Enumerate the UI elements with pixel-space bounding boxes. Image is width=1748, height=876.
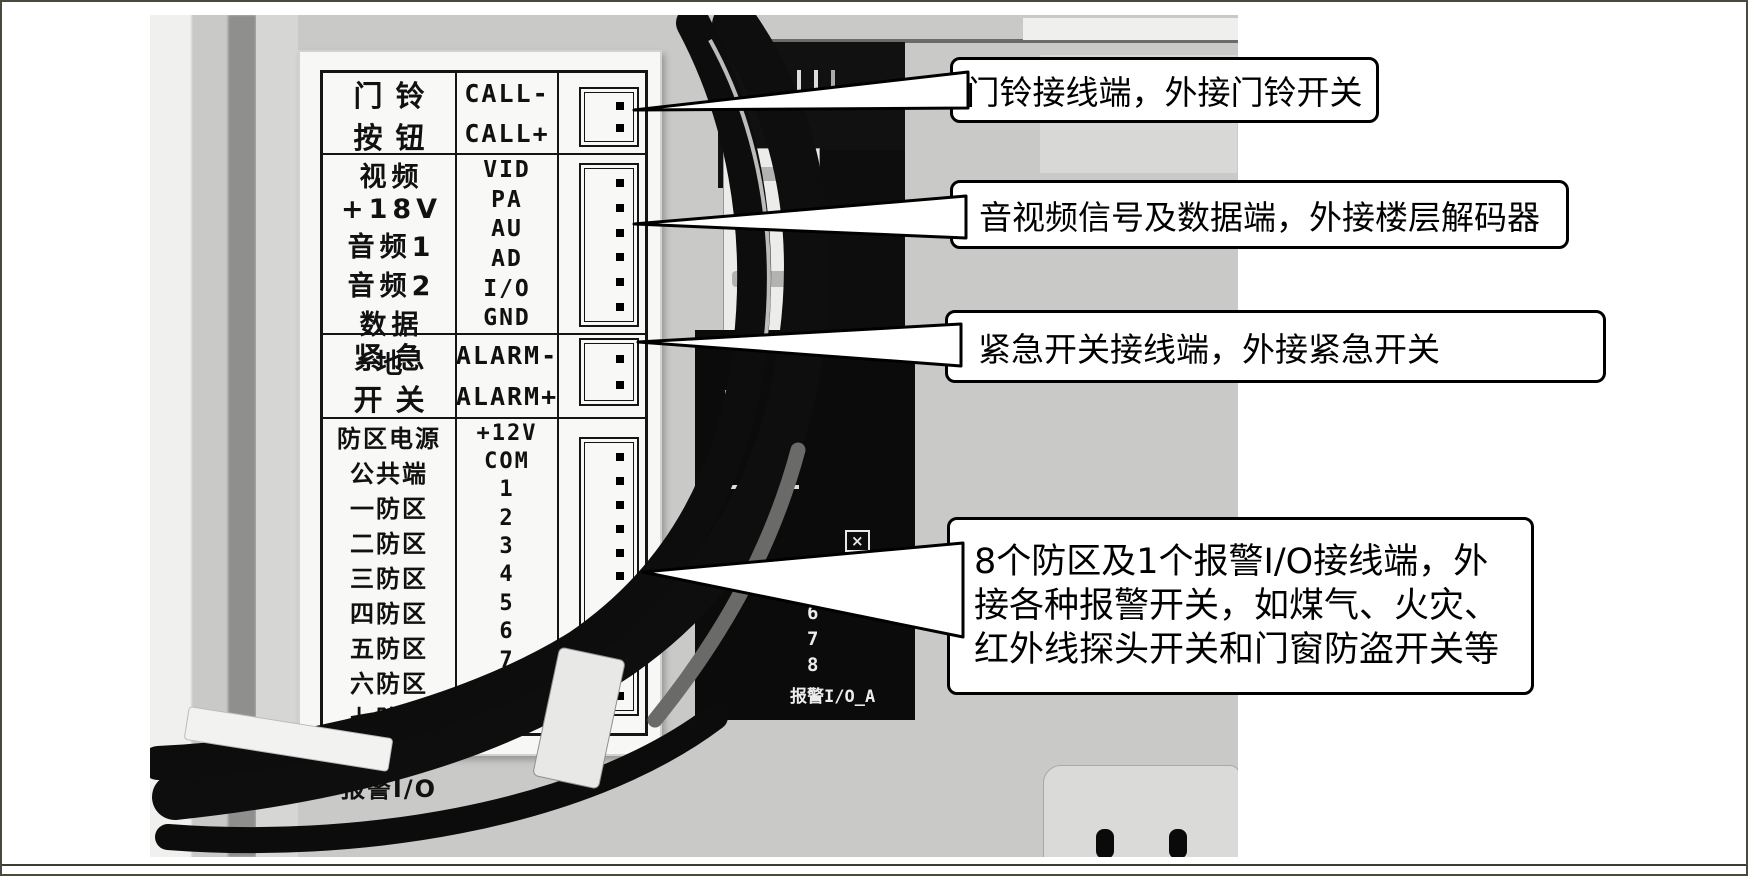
silkscreen-alarm-io: 报警I/O_A <box>790 682 875 707</box>
silkscreen-zone-8: 8 <box>807 654 818 676</box>
terminal-name: VID <box>457 155 557 185</box>
zh-label: 四防区 <box>323 594 455 629</box>
terminal-name: 6 <box>457 618 557 646</box>
connector-pin <box>616 525 624 533</box>
terminal-name: 7 <box>457 646 557 674</box>
terminal-name: CALL+ <box>457 113 557 153</box>
connector-pin <box>616 596 624 604</box>
connector-notch <box>732 167 794 181</box>
terminal-name: ALARM+ <box>457 376 557 417</box>
device-top-slab <box>1023 18 1238 40</box>
terminal-name-column: CALL-CALL+ <box>457 73 559 153</box>
terminal-name: ALARM- <box>457 335 557 376</box>
connector-slot <box>1169 829 1187 857</box>
terminal-group-emergency: 紧急开关ALARM-ALARM+ <box>323 335 645 419</box>
connector-pin <box>616 303 624 311</box>
terminal-name: GND <box>457 303 557 333</box>
zh-label: 报警I/O <box>323 769 455 804</box>
connector-drawing-doorbell <box>579 87 639 147</box>
zh-label: 音频2 <box>323 264 455 303</box>
connector-pin <box>616 549 624 557</box>
terminal-name-column: +12VCOM12345678I/O-A <box>457 419 559 731</box>
connector-inner-outline <box>584 343 634 401</box>
connector-inner-outline <box>584 168 634 322</box>
connector-pin <box>616 572 624 580</box>
silkscreen-zone-7: 7 <box>807 628 818 650</box>
zh-label: 三防区 <box>323 559 455 594</box>
terminal-name: 8 <box>457 674 557 702</box>
pcb-trace <box>780 70 784 96</box>
zh-label-column: 门铃按钮 <box>323 73 457 153</box>
silkscreen-partial-1: AL <box>787 358 809 379</box>
connector-pin <box>616 253 624 261</box>
terminal-name: +12V <box>457 419 557 447</box>
callout-emergency: 紧急开关接线端，外接紧急开关 <box>945 310 1606 383</box>
zh-label: 防区电源 <box>323 419 455 454</box>
pcb-dark-area <box>818 150 905 355</box>
connector-pin <box>616 204 624 212</box>
connector-pins <box>616 171 624 319</box>
connector-drawing-av-data <box>579 163 639 327</box>
callout-doorbell-text: 门铃接线端，外接门铃开关 <box>967 66 1363 114</box>
device-photo: 门铃按钮CALL-CALL+视频+18V音频1音频2数据地VIDPAAUADI/… <box>150 15 1238 857</box>
connector-column <box>559 155 645 333</box>
zh-label: 七防区 <box>323 699 455 734</box>
terminal-name: AD <box>457 244 557 274</box>
zh-label: 二防区 <box>323 524 455 559</box>
connector-pin <box>616 477 624 485</box>
zh-label: 紧急 <box>323 335 455 377</box>
zh-label-column: 紧急开关 <box>323 335 457 417</box>
zh-label: 按钮 <box>323 115 455 157</box>
connector-pin <box>616 278 624 286</box>
connector-pins <box>616 95 624 139</box>
terminal-name: 4 <box>457 561 557 589</box>
connector-column <box>559 73 645 153</box>
terminal-name: COM <box>457 447 557 475</box>
silkscreen-partial-2: AM <box>787 386 809 407</box>
callout-av-data-text: 音视频信号及数据端，外接楼层解码器 <box>979 191 1540 239</box>
bottom-rule <box>0 864 1748 866</box>
callout-zones: 8个防区及1个报警I/O接线端，外接各种报警开关，如煤气、火灾、红外线探头开关和… <box>947 517 1534 695</box>
zh-label: 开关 <box>323 377 455 419</box>
connector-pin <box>616 644 624 652</box>
zh-label: 六防区 <box>323 664 455 699</box>
callout-emergency-text: 紧急开关接线端，外接紧急开关 <box>978 323 1440 371</box>
pcb-board: AL AM × 6 7 8 报警I/O_A <box>695 330 915 720</box>
pcb-white-connector <box>723 148 820 342</box>
connector-pin <box>616 381 624 389</box>
terminal-name-column: VIDPAAUADI/OGND <box>457 155 559 333</box>
silkscreen-box-symbol: × <box>845 530 870 552</box>
zh-label: 五防区 <box>323 629 455 664</box>
connector-pin <box>616 124 624 132</box>
pcb-trace <box>814 70 818 96</box>
connector-pin <box>616 229 624 237</box>
terminal-group-av-data: 视频+18V音频1音频2数据地VIDPAAUADI/OGND <box>323 155 645 335</box>
connector-notch <box>732 271 794 287</box>
connector-pin <box>616 179 624 187</box>
connector-inner-outline <box>584 92 634 142</box>
pcb-trace <box>797 70 801 96</box>
zh-label: +18V <box>323 194 455 225</box>
pcb-trace <box>763 70 767 96</box>
zh-label-column: 防区电源公共端一防区二防区三防区四防区五防区六防区七防区八防区报警I/O <box>323 419 457 731</box>
callout-av-data: 音视频信号及数据端，外接楼层解码器 <box>950 180 1569 249</box>
terminal-name: PA <box>457 185 557 215</box>
connector-pin <box>616 102 624 110</box>
terminal-name-column: ALARM-ALARM+ <box>457 335 559 417</box>
terminal-name: AU <box>457 214 557 244</box>
terminal-name: CALL- <box>457 73 557 113</box>
connector-pin <box>616 501 624 509</box>
pcb-trace <box>831 70 835 96</box>
terminal-name: 2 <box>457 504 557 532</box>
connector-drawing-emergency <box>579 338 639 406</box>
terminal-name: 1 <box>457 476 557 504</box>
terminal-group-doorbell: 门铃按钮CALL-CALL+ <box>323 73 645 155</box>
connector-pin <box>616 620 624 628</box>
zh-label: 公共端 <box>323 454 455 489</box>
terminal-name: 5 <box>457 589 557 617</box>
connector-pins <box>616 346 624 398</box>
callout-zones-text: 8个防区及1个报警I/O接线端，外接各种报警开关，如煤气、火灾、红外线探头开关和… <box>974 540 1507 672</box>
terminal-name: I/O <box>457 274 557 304</box>
terminal-table: 门铃按钮CALL-CALL+视频+18V音频1音频2数据地VIDPAAUADI/… <box>320 70 648 736</box>
zh-label: 门铃 <box>323 73 455 115</box>
silkscreen-zone-6: 6 <box>807 602 818 624</box>
connector-pin <box>616 453 624 461</box>
terminal-name: 3 <box>457 532 557 560</box>
zh-label: 音频1 <box>323 225 455 264</box>
bottom-right-connector <box>1043 765 1238 857</box>
connector-column <box>559 335 645 417</box>
terminal-label-panel: 门铃按钮CALL-CALL+视频+18V音频1音频2数据地VIDPAAUADI/… <box>298 50 662 756</box>
zh-label: 视频 <box>323 155 455 194</box>
connector-pin <box>616 355 624 363</box>
callout-doorbell: 门铃接线端，外接门铃开关 <box>950 57 1379 123</box>
zh-label: 一防区 <box>323 489 455 524</box>
connector-slot <box>1096 829 1114 857</box>
figure-annotated-terminal-photo: { "label_table": { "groups": [ { "name":… <box>0 0 1748 876</box>
zh-label-column: 视频+18V音频1音频2数据地 <box>323 155 457 333</box>
